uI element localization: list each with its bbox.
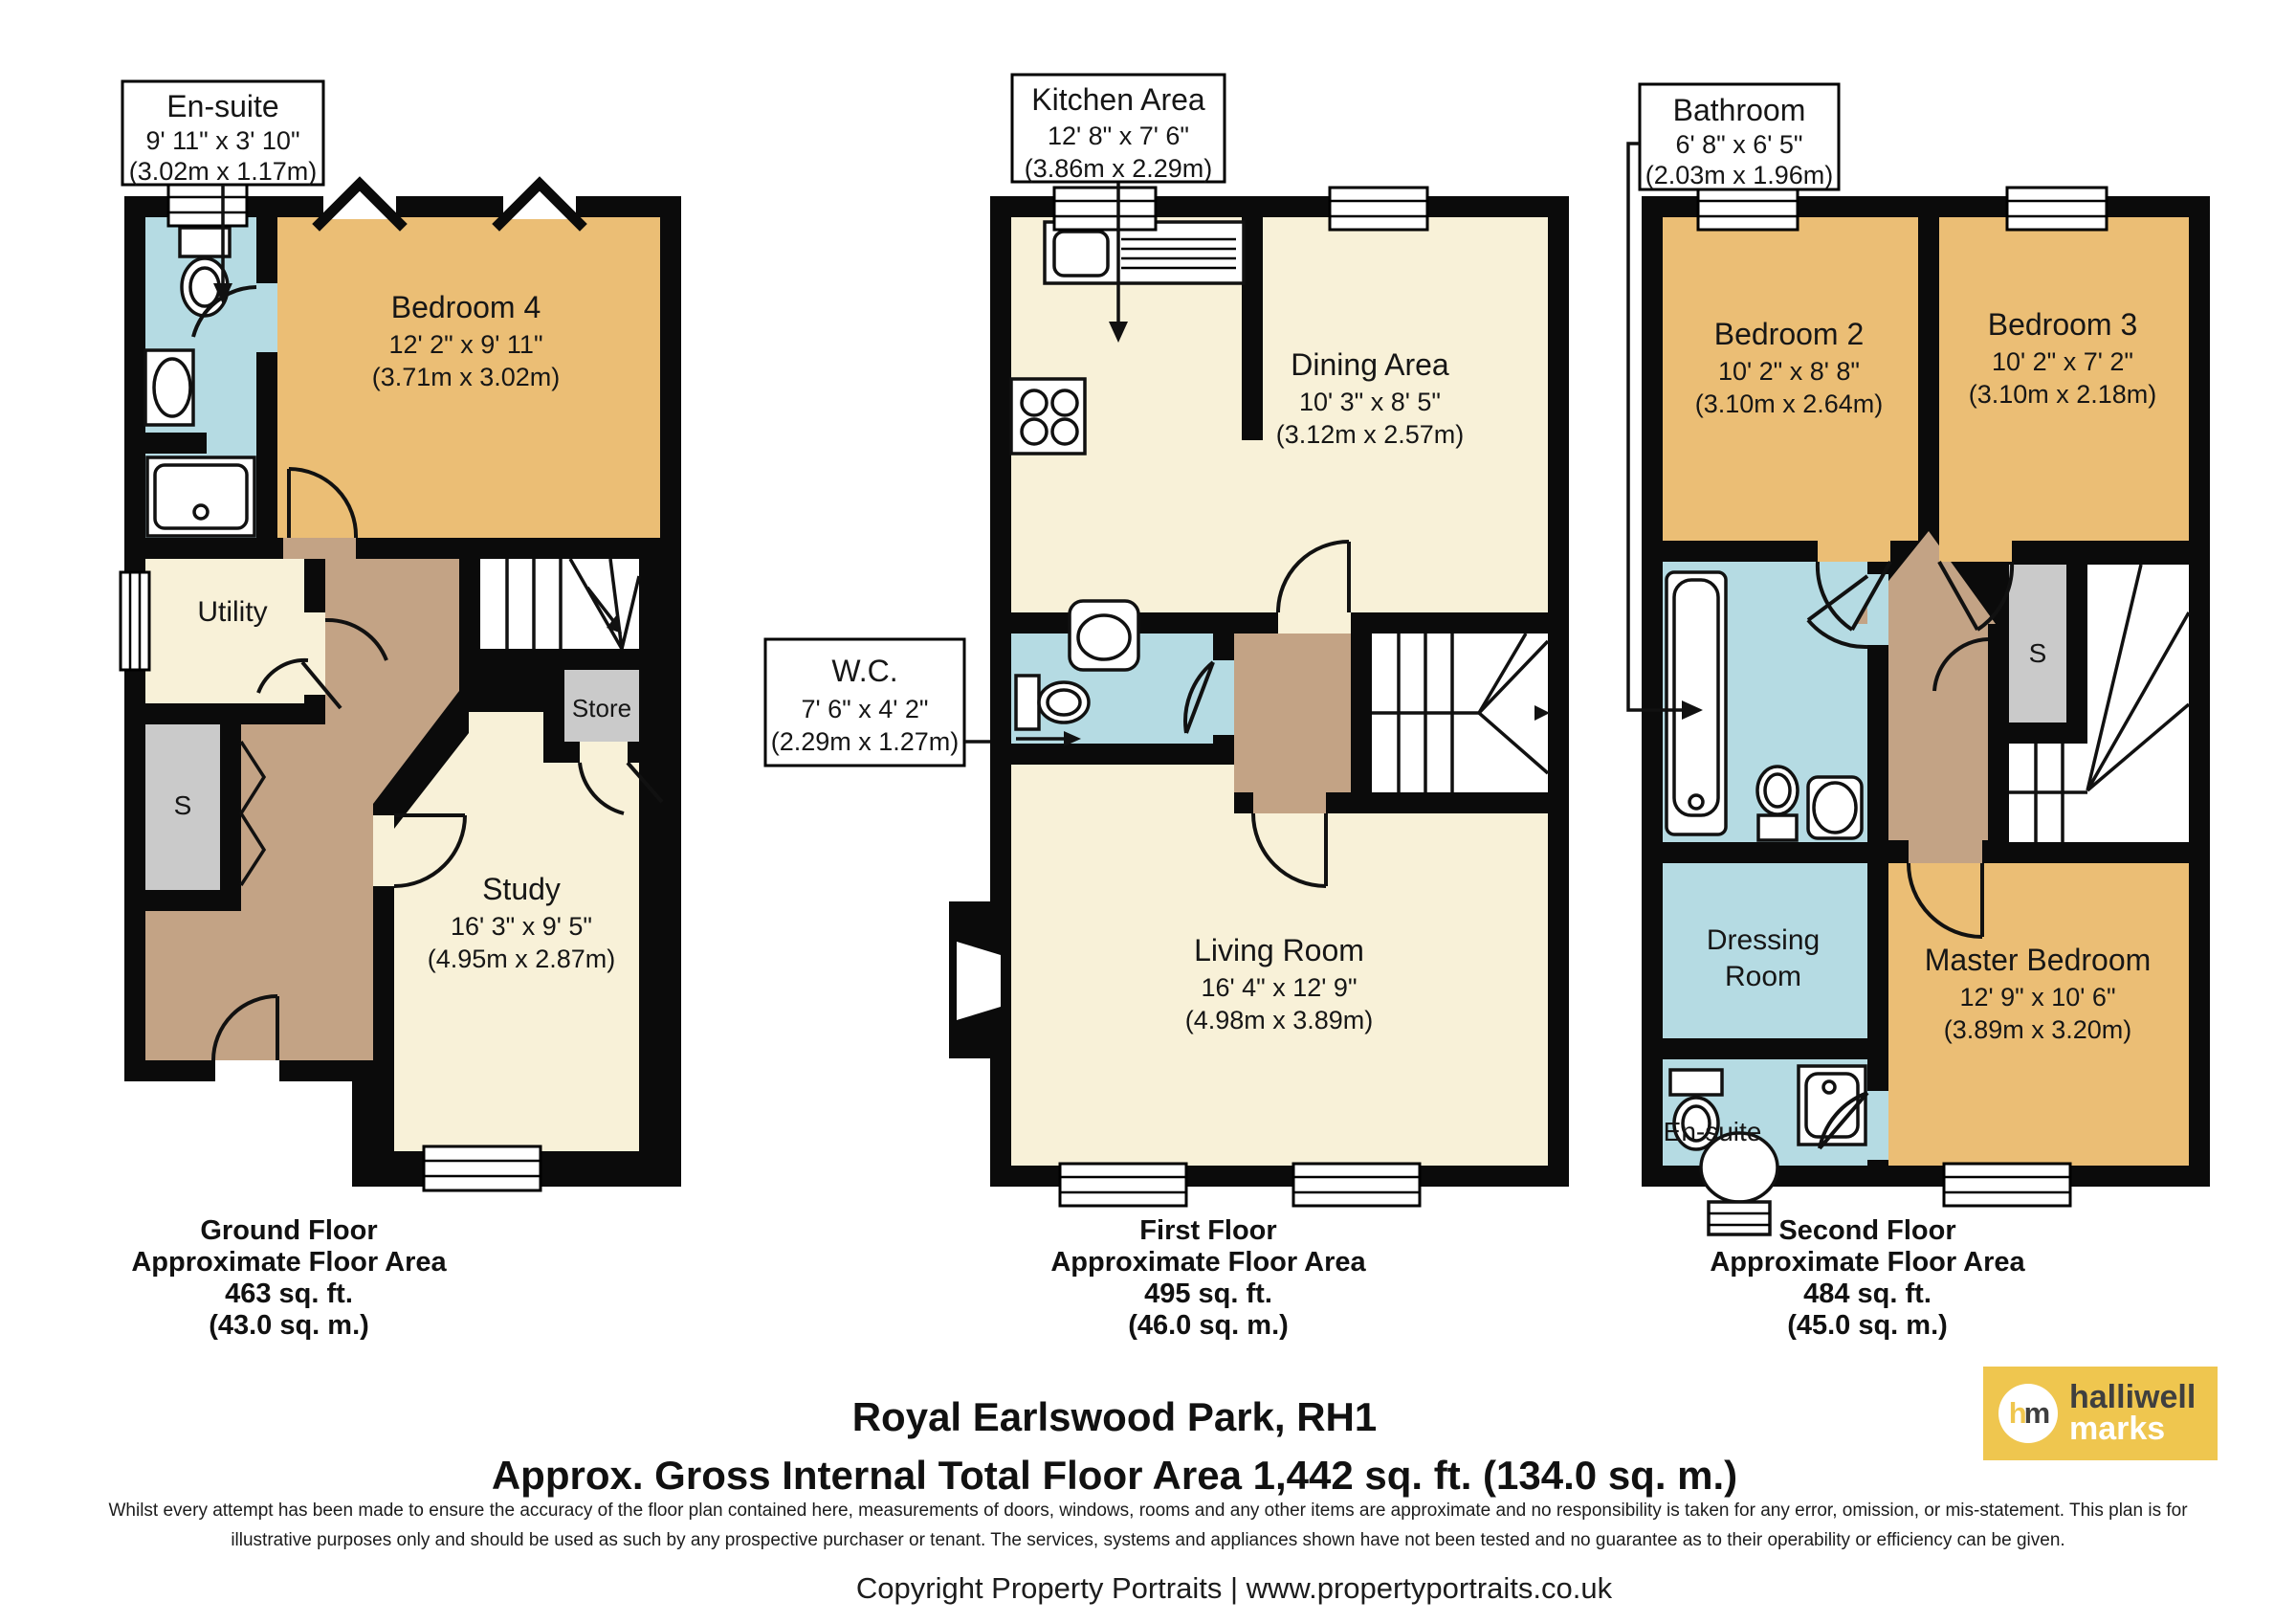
bedroom3-door-gap [1939, 541, 2012, 562]
room-utility [145, 559, 304, 703]
dining-metric: (3.12m x 2.57m) [1276, 420, 1465, 449]
window-ensuite-gf [168, 184, 247, 226]
study-name: Study [482, 872, 561, 906]
bedroom3-imperial: 10' 2" x 7' 2" [1992, 347, 2133, 376]
dining-name: Dining Area [1291, 347, 1449, 382]
second-floor-plan: Bathroom 6' 8" x 6' 5" (2.03m x 1.96m) B… [1628, 84, 2210, 1234]
bedroom2-metric: (3.10m x 2.64m) [1695, 389, 1884, 418]
plan-title: Royal Earlswood Park, RH1 Approx. Gross … [492, 1388, 1737, 1504]
caption-title: Second Floor [1710, 1215, 2024, 1247]
caption-subtitle: Approximate Floor Area [1050, 1247, 1365, 1278]
wc-label-title: W.C. [831, 654, 897, 688]
disclaimer-line2: illustrative purposes only and should be… [108, 1525, 2187, 1555]
bathroom-label-metric: (2.03m x 1.96m) [1645, 161, 1834, 189]
window-bedroom2 [1698, 188, 1798, 230]
ensuite-gf-label-title: En-suite [166, 89, 278, 123]
fireplace-icon [949, 901, 1011, 1058]
ensuite-gf-door-gap [256, 283, 277, 352]
window-bedroom3 [2007, 188, 2107, 230]
ensuite-gf-label-imperial: 9' 11" x 3' 10" [145, 126, 299, 155]
study-door-gap [373, 815, 394, 886]
ensuite-wall-stub [145, 433, 207, 454]
bedroom4-imperial: 12' 2" x 9' 11" [388, 330, 542, 359]
bathroom-label-title: Bathroom [1673, 93, 1806, 127]
logo-wordmark: halliwell marks [2069, 1382, 2196, 1445]
store-name: Store [572, 694, 631, 723]
living-imperial: 16' 4" x 12' 9" [1201, 973, 1357, 1002]
logo-monogram-icon: hm [1998, 1384, 2058, 1443]
cupboard-sf-label: S [2029, 638, 2047, 668]
toilet-cistern [1016, 676, 1039, 729]
logo-word-marks: marks [2069, 1413, 2196, 1445]
entrance-door-gap [215, 1060, 279, 1085]
bedroom2-door-gap [1818, 541, 1890, 562]
landing-ff [1234, 634, 1351, 792]
toilet-cistern [1758, 815, 1797, 840]
dining-imperial: 10' 3" x 8' 5" [1299, 388, 1441, 416]
utility-door-gap [304, 612, 325, 695]
master-door-gap [1909, 840, 1982, 863]
wc-door-gap [1213, 660, 1234, 735]
first-floor-plan: Kitchen Area 12' 8" x 7' 6" (3.86m x 2.2… [765, 75, 1569, 1206]
floorplan-page: En-suite 9' 11" x 3' 10" (3.02m x 1.17m)… [0, 0, 2296, 1623]
caption-area-m: (46.0 sq. m.) [1050, 1310, 1365, 1342]
window-living-right [1293, 1164, 1420, 1206]
study-imperial: 16' 3" x 9' 5" [451, 912, 592, 941]
basin-icon [1078, 615, 1130, 659]
kitchen-sink-icon [1054, 232, 1108, 276]
caption-area-ft: 484 sq. ft. [1710, 1278, 2024, 1310]
window-study [424, 1146, 541, 1190]
window-dining [1330, 188, 1427, 230]
logo-word-halliwell: halliwell [2069, 1382, 2196, 1413]
ensuite-sf-door-gap [1867, 1091, 1888, 1160]
property-address: Royal Earlswood Park, RH1 [492, 1388, 1737, 1446]
hob-icon [1022, 390, 1047, 415]
living-door-gap [1253, 792, 1326, 813]
living-name: Living Room [1194, 933, 1364, 967]
master-metric: (3.89m x 3.20m) [1944, 1015, 2132, 1044]
second-floor-caption: Second Floor Approximate Floor Area 484 … [1710, 1215, 2024, 1342]
caption-area-ft: 463 sq. ft. [131, 1278, 446, 1310]
disclaimer-line1: Whilst every attempt has been made to en… [108, 1496, 2187, 1525]
window-living-left [1060, 1164, 1186, 1206]
logo-letter-m: m [2024, 1396, 2048, 1431]
shower-drain [1823, 1081, 1835, 1093]
bedroom4-metric: (3.71m x 3.02m) [372, 363, 561, 391]
basin-icon [154, 359, 190, 416]
master-imperial: 12' 9" x 10' 6" [1959, 983, 2115, 1012]
bedroom4-door-gap [283, 538, 356, 559]
bathroom-label-imperial: 6' 8" x 6' 5" [1675, 130, 1802, 159]
study-metric: (4.95m x 2.87m) [428, 945, 616, 973]
basin-icon [1814, 783, 1856, 833]
logo-letter-h: h [2009, 1396, 2024, 1431]
bath-drain [1689, 795, 1703, 809]
first-floor-caption: First Floor Approximate Floor Area 495 s… [1050, 1215, 1365, 1342]
toilet-cistern [1670, 1070, 1722, 1095]
wc-label-imperial: 7' 6" x 4' 2" [801, 695, 928, 723]
ground-floor-plan: En-suite 9' 11" x 3' 10" (3.02m x 1.17m)… [121, 81, 681, 1190]
caption-area-m: (45.0 sq. m.) [1710, 1310, 2024, 1342]
caption-subtitle: Approximate Floor Area [1710, 1247, 2024, 1278]
store-door-gap [580, 742, 628, 763]
kitchen-label-title: Kitchen Area [1031, 82, 1205, 117]
utility-name: Utility [197, 596, 267, 628]
wc-label-metric: (2.29m x 1.27m) [771, 727, 960, 756]
kitchen-label-metric: (3.86m x 2.29m) [1025, 154, 1213, 183]
caption-subtitle: Approximate Floor Area [131, 1247, 446, 1278]
window-utility [121, 572, 149, 670]
shower-drain [194, 505, 208, 519]
dining-door-gap [1278, 612, 1351, 634]
halliwell-marks-logo: hm halliwell marks [1983, 1367, 2218, 1460]
caption-area-ft: 495 sq. ft. [1050, 1278, 1365, 1310]
ensuite-gf-label-metric: (3.02m x 1.17m) [129, 157, 318, 186]
dressing-name-line1: Dressing [1707, 924, 1820, 956]
caption-title: First Floor [1050, 1215, 1365, 1247]
living-metric: (4.98m x 3.89m) [1185, 1006, 1374, 1034]
kitchen-label-imperial: 12' 8" x 7' 6" [1048, 122, 1189, 150]
master-name: Master Bedroom [1925, 943, 2152, 977]
floorplan-drawing: En-suite 9' 11" x 3' 10" (3.02m x 1.17m)… [0, 0, 2296, 1623]
copyright-line: Copyright Property Portraits | www.prope… [856, 1571, 1612, 1606]
bedroom4-name: Bedroom 4 [391, 290, 541, 324]
room-bedroom3 [1939, 217, 2189, 541]
ensuite-sf-name: En-suite [1664, 1117, 1762, 1146]
bedroom2-imperial: 10' 2" x 8' 8" [1718, 357, 1860, 386]
window-master [1944, 1164, 2070, 1206]
ground-floor-caption: Ground Floor Approximate Floor Area 463 … [131, 1215, 446, 1342]
bedroom3-metric: (3.10m x 2.18m) [1969, 380, 2157, 409]
caption-area-m: (43.0 sq. m.) [131, 1310, 446, 1342]
disclaimer: Whilst every attempt has been made to en… [108, 1496, 2187, 1555]
cupboard-gf-label: S [174, 790, 192, 820]
caption-title: Ground Floor [131, 1215, 446, 1247]
room-master [1888, 863, 2189, 1166]
dressing-name-line2: Room [1725, 961, 1801, 992]
window-kitchen [1054, 188, 1156, 230]
bedroom3-name: Bedroom 3 [1988, 307, 2138, 342]
wc-label-box: W.C. 7' 6" x 4' 2" (2.29m x 1.27m) [765, 639, 990, 766]
bedroom2-name: Bedroom 2 [1714, 317, 1865, 351]
